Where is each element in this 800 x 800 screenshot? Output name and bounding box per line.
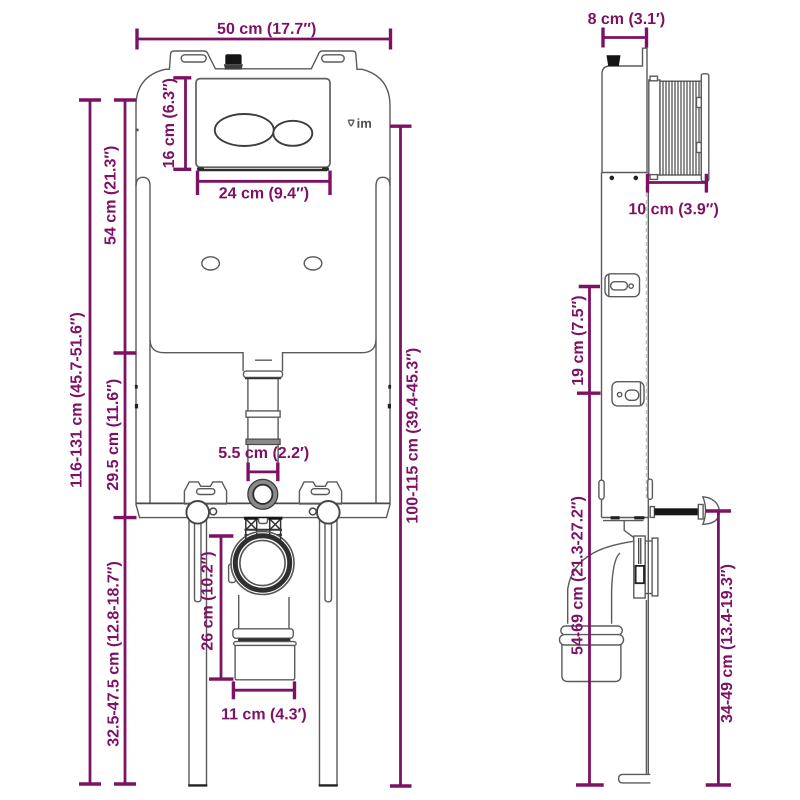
- svg-text:116-131 cm (45.7-51.6″): 116-131 cm (45.7-51.6″): [69, 312, 86, 488]
- svg-text:29.5 cm (11.6″): 29.5 cm (11.6″): [105, 379, 122, 491]
- svg-text:54-69 cm (21.3-27.2″): 54-69 cm (21.3-27.2″): [570, 496, 587, 655]
- svg-text:5.5 cm (2.2′): 5.5 cm (2.2′): [218, 445, 309, 462]
- svg-text:32.5-47.5 cm (12.8-18.7″): 32.5-47.5 cm (12.8-18.7″): [106, 561, 123, 747]
- svg-text:11 cm (4.3′): 11 cm (4.3′): [221, 706, 307, 723]
- svg-text:100-115 cm (39.4-45.3″): 100-115 cm (39.4-45.3″): [405, 348, 422, 524]
- svg-text:im: im: [357, 116, 372, 131]
- svg-text:24 cm (9.4″): 24 cm (9.4″): [219, 185, 309, 202]
- svg-text:54 cm (21.3″): 54 cm (21.3″): [103, 146, 120, 245]
- svg-text:8 cm (3.1′): 8 cm (3.1′): [588, 11, 666, 28]
- svg-text:34-49 cm (13.4-19.3″): 34-49 cm (13.4-19.3″): [719, 564, 736, 723]
- svg-text:19 cm (7.5″): 19 cm (7.5″): [570, 295, 587, 385]
- svg-text:10 cm (3.9″): 10 cm (3.9″): [628, 201, 718, 218]
- svg-text:50 cm (17.7″): 50 cm (17.7″): [217, 21, 316, 38]
- svg-text:26 cm (10.2″): 26 cm (10.2″): [200, 551, 217, 650]
- svg-text:16 cm (6.3″): 16 cm (6.3″): [161, 78, 178, 168]
